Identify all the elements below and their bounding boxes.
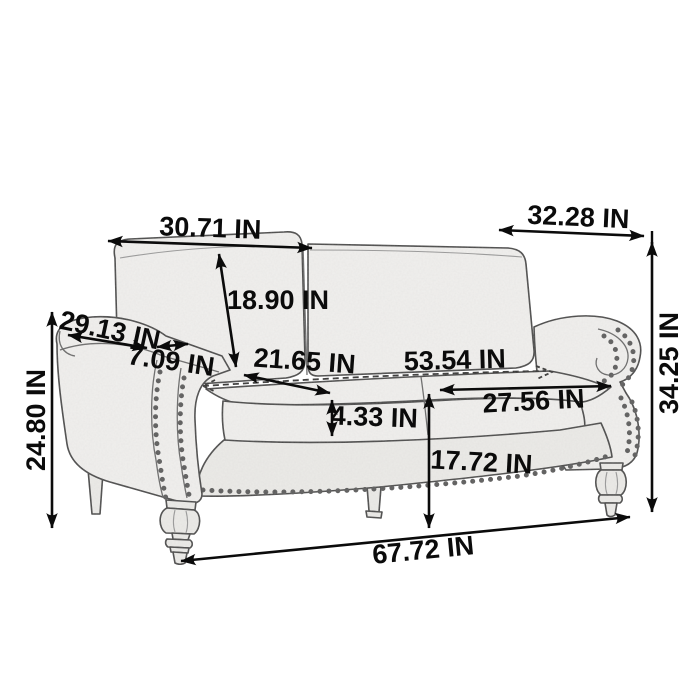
label-back-cushion-height: 18.90 IN bbox=[227, 285, 329, 315]
sofa-leg-front-left bbox=[160, 500, 200, 564]
dimension-diagram-page: 30.71 IN 32.28 IN 18.90 IN 29.13 IN 7.09… bbox=[0, 0, 700, 700]
label-overall-length: 67.72 IN bbox=[371, 530, 475, 570]
label-overall-height: 34.25 IN bbox=[654, 312, 684, 414]
label-depth: 32.28 IN bbox=[527, 200, 630, 234]
dimension-seat-cushion-thickness: 4.33 IN bbox=[330, 400, 418, 436]
dimension-overall-length: 67.72 IN bbox=[181, 517, 630, 570]
label-seat-width: 53.54 IN bbox=[403, 344, 506, 377]
dimension-arm-height: 24.80 IN bbox=[21, 312, 52, 528]
dimension-overall-height: 34.25 IN bbox=[652, 231, 684, 512]
dimension-depth: 32.28 IN bbox=[499, 200, 644, 236]
label-seat-cushion-thickness: 4.33 IN bbox=[330, 400, 418, 433]
label-back-width: 30.71 IN bbox=[159, 211, 262, 245]
dimension-diagram: 30.71 IN 32.28 IN 18.90 IN 29.13 IN 7.09… bbox=[0, 0, 700, 700]
label-arm-height: 24.80 IN bbox=[21, 369, 51, 471]
dimension-seat-width: 53.54 IN bbox=[403, 344, 506, 377]
label-seat-height: 17.72 IN bbox=[430, 444, 534, 479]
sofa-leg-front-right bbox=[596, 463, 627, 517]
label-seat-depth: 27.56 IN bbox=[482, 383, 586, 418]
